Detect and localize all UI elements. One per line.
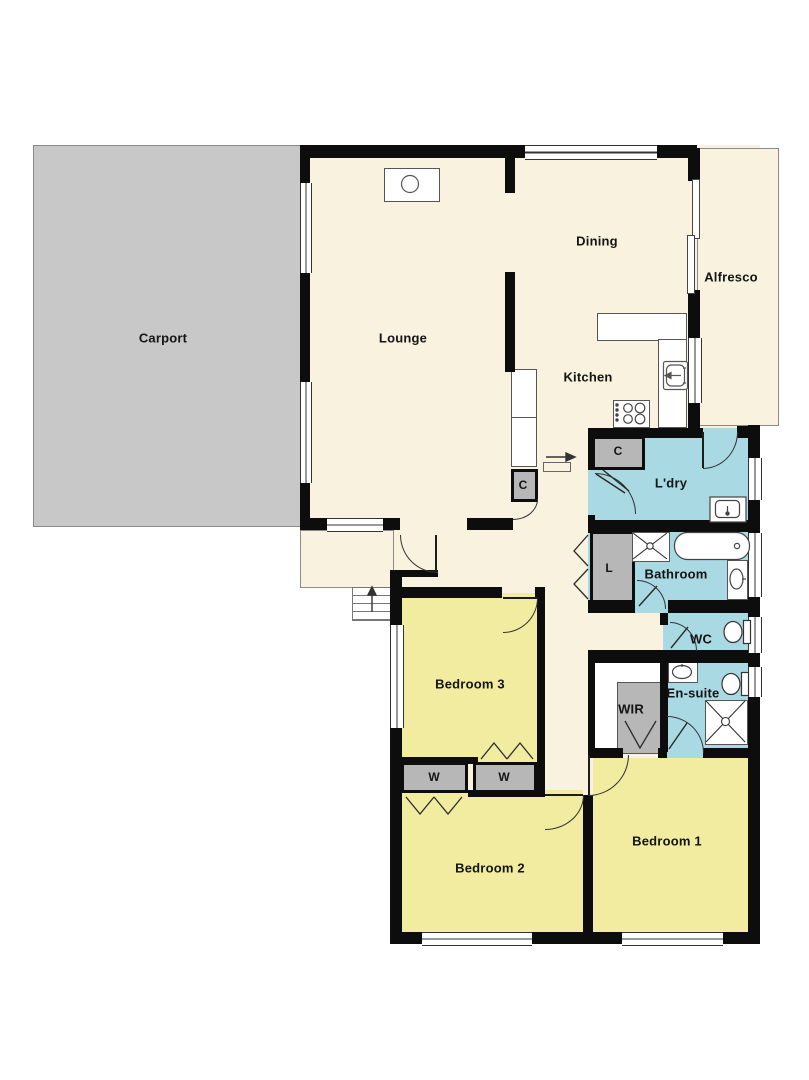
ensuite-label: En-suite	[667, 686, 720, 701]
bedroom3-label: Bedroom 3	[435, 677, 505, 692]
alfresco-label: Alfresco	[704, 270, 758, 285]
bathroom-label: Bathroom	[645, 567, 708, 582]
wardrobe-right-label: W	[498, 770, 509, 784]
linen-label: L	[605, 561, 612, 575]
tv-circle	[402, 176, 419, 193]
stove-burners	[616, 403, 645, 424]
bedroom2-label: Bedroom 2	[455, 861, 525, 876]
linen-bifold-doors	[574, 535, 588, 599]
wir-label: WIR	[618, 702, 644, 717]
dining-label: Dining	[576, 234, 618, 249]
ensuite-toilet	[722, 673, 749, 696]
kitchen-sink	[664, 362, 688, 390]
wc-label: WC	[690, 632, 712, 647]
laundry-trough	[710, 497, 746, 522]
laundry-label: L'dry	[655, 476, 687, 491]
carport-label: Carport	[139, 331, 187, 346]
ensuite-basin	[673, 664, 692, 679]
entry-arrow	[546, 453, 575, 461]
laundry-cupboard-label: C	[614, 444, 623, 458]
wardrobe-bifold-doors	[406, 721, 656, 814]
wc-toilet	[724, 621, 751, 644]
steps-arrow	[368, 587, 376, 612]
kitchen-label: Kitchen	[563, 370, 612, 385]
bathroom-basin	[730, 569, 746, 589]
floor-plan: Carport Lounge Dining Alfresco Kitchen L…	[0, 0, 809, 1080]
wardrobe-left-label: W	[428, 770, 439, 784]
fixture-linework	[0, 0, 809, 1080]
bedroom1-label: Bedroom 1	[632, 834, 702, 849]
bathtub	[675, 533, 750, 560]
entry-cupboard-label: C	[519, 478, 528, 492]
lounge-label: Lounge	[379, 331, 427, 346]
